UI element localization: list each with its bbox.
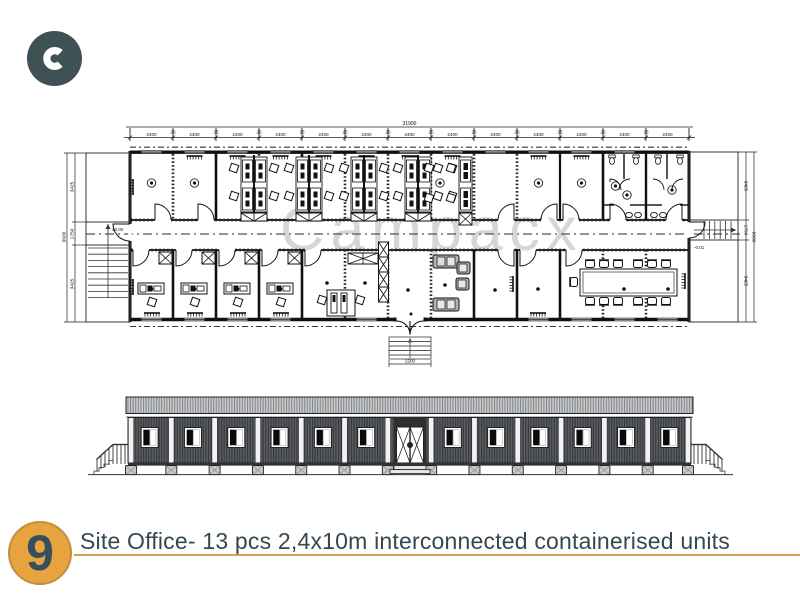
svg-text:25: 25 [170,130,176,135]
svg-text:2400: 2400 [361,132,372,137]
svg-text:2400: 2400 [576,132,587,137]
svg-text:25: 25 [600,130,606,135]
svg-text:1750: 1750 [70,228,76,239]
svg-text:25: 25 [514,130,520,135]
svg-text:2400: 2400 [189,132,200,137]
svg-text:2400: 2400 [662,132,673,137]
svg-text:25: 25 [428,130,434,135]
svg-text:3425: 3425 [70,278,76,289]
svg-text:Campacx: Campacx [280,195,583,263]
svg-text:3425: 3425 [743,276,749,287]
svg-text:25: 25 [643,130,649,135]
svg-text:25: 25 [256,130,262,135]
svg-text:2400: 2400 [490,132,501,137]
svg-text:2400: 2400 [447,132,458,137]
svg-text:25: 25 [557,130,563,135]
svg-text:1750: 1750 [743,225,749,236]
svg-text:9600: 9600 [62,231,68,242]
svg-text:2400: 2400 [318,132,329,137]
svg-text:3425: 3425 [743,181,749,192]
svg-text:2400: 2400 [146,132,157,137]
svg-text:2200: 2200 [405,359,416,364]
svg-text:25: 25 [471,130,477,135]
svg-text:25: 25 [385,130,391,135]
svg-text:±0.00: ±0.00 [112,227,124,232]
svg-text:2400: 2400 [404,132,415,137]
svg-text:25: 25 [342,130,348,135]
svg-text:2400: 2400 [619,132,630,137]
svg-text:-0.01: -0.01 [694,245,705,250]
svg-text:25: 25 [213,130,219,135]
svg-text:3425: 3425 [70,181,76,192]
svg-text:25: 25 [299,130,305,135]
svg-text:31900: 31900 [403,121,417,127]
svg-text:2400: 2400 [533,132,544,137]
svg-text:2400: 2400 [232,132,243,137]
svg-text:2400: 2400 [275,132,286,137]
svg-text:9600: 9600 [751,232,757,243]
